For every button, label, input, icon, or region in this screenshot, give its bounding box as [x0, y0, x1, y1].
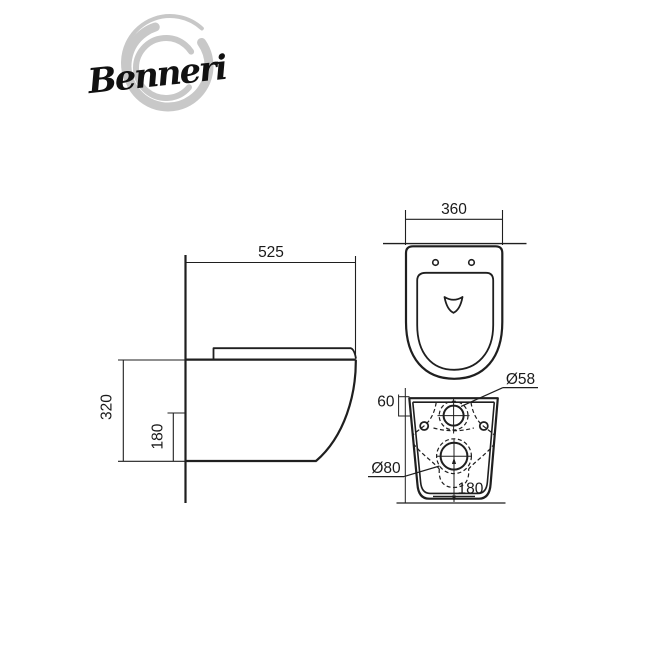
brand-logo: Benneri — [85, 3, 230, 123]
dim-label-180-rear: 180 — [458, 481, 484, 498]
dim-label-360: 360 — [441, 201, 467, 218]
dim-label-60: 60 — [377, 394, 395, 411]
side-view: 525 320 180 — [99, 244, 357, 503]
dim-side-height: 320 — [99, 360, 186, 461]
dim-label-d58: Ø58 — [506, 371, 535, 388]
top-view: 360 — [383, 201, 527, 379]
dim-label-525: 525 — [258, 244, 284, 261]
dim-label-d80: Ø80 — [371, 460, 401, 477]
seat-lid-outline — [214, 348, 357, 359]
body-front-curve — [316, 360, 356, 461]
rear-view: 60 Ø58 Ø80 180 — [368, 371, 538, 503]
dim-label-180: 180 — [150, 423, 167, 449]
brand-name-text: Benneri — [85, 48, 229, 102]
dim-rear-inlet-offset: 60 — [377, 394, 412, 417]
dim-label-320: 320 — [99, 394, 116, 420]
drawing: 525 320 180 — [99, 201, 539, 503]
dim-side-width: 525 — [186, 244, 356, 359]
dim-top-width: 360 — [406, 201, 503, 245]
dim-side-lower-edge: 180 — [150, 413, 187, 461]
technical-drawing-page: Benneri 525 320 180 — [0, 0, 650, 650]
toilet-technical-drawing: Benneri 525 320 180 — [0, 0, 650, 650]
